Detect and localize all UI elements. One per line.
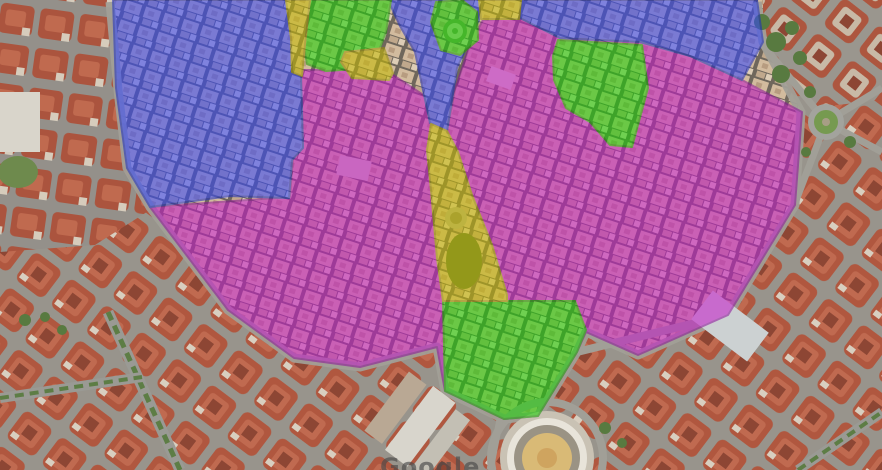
google-watermark: Google xyxy=(380,453,480,470)
district-yellow-north-small[interactable] xyxy=(479,0,521,19)
map-canvas[interactable]: Google xyxy=(0,0,882,470)
district-blue-northwest[interactable] xyxy=(113,0,303,207)
west-large-building xyxy=(0,92,40,152)
roundabout-northeast xyxy=(808,104,844,140)
